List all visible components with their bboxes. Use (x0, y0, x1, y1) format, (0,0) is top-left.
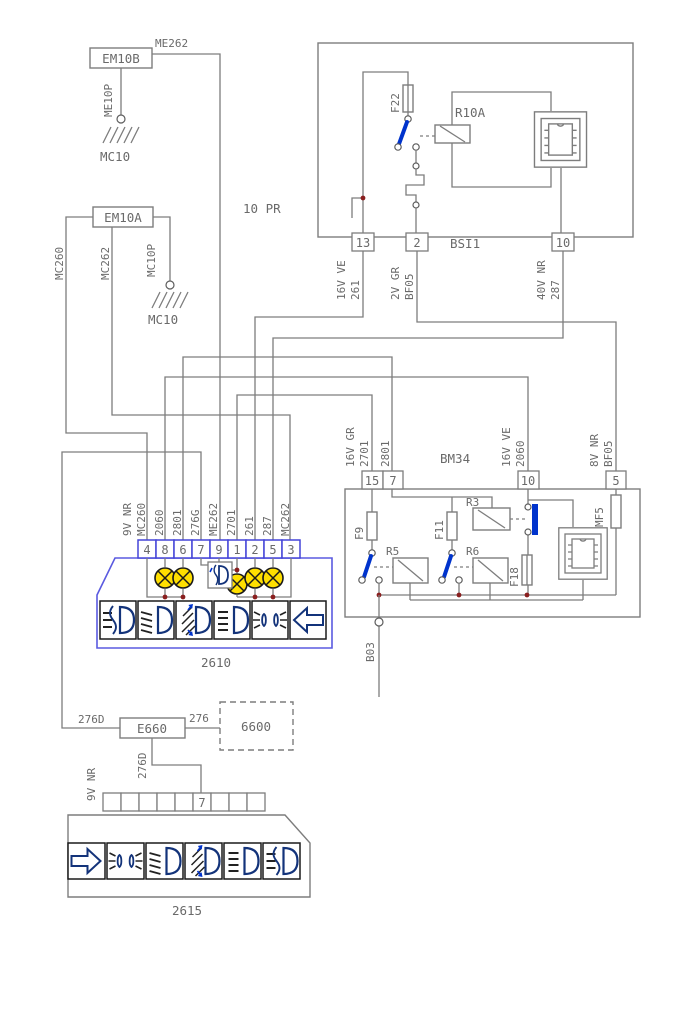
bsi1-pin10-num: 10 (556, 236, 570, 250)
junction-dot (361, 196, 366, 201)
wire-276d-label: 276D (78, 713, 105, 726)
unit-2615-title: 2615 (172, 903, 202, 918)
pin10-wire-label: 2060 (514, 441, 527, 468)
pin-3: 3 (287, 543, 294, 557)
diagram-canvas: EM10B ME262 ME10P MC10 EM10A MC260 MC262… (0, 0, 700, 1020)
pin-9: 9 (215, 543, 222, 557)
bsi1-pin13-num: 13 (356, 236, 370, 250)
wire-2801-label: 2801 (171, 510, 184, 537)
relay-r6-label: R6 (466, 545, 479, 558)
fuse-f22-label: F22 (389, 93, 402, 113)
bm34-pin5-num: 5 (612, 474, 619, 488)
lamp-symbol (173, 568, 193, 588)
wire-me10p-label: ME10P (102, 84, 115, 117)
contact (413, 163, 419, 169)
unit-2615: 9V NR 7 2615 (68, 768, 310, 918)
pin-1: 1 (233, 543, 240, 557)
pin15-voltage-label: 16V GR (344, 427, 357, 467)
pin2-voltage-label: 2V GR (389, 267, 402, 300)
ground-terminal (117, 115, 125, 123)
pin-7: 7 (198, 796, 205, 810)
wire-9vnr-label: 9V NR (121, 503, 134, 536)
fuse-mf5-label: MF5 (593, 507, 606, 527)
bm34-pin7-num: 7 (389, 474, 396, 488)
relay-r5-label: R5 (386, 545, 399, 558)
module-em10a-label: EM10A (104, 210, 142, 225)
wire-276g (62, 452, 201, 728)
wire-261-label: 261 (243, 516, 256, 536)
ground-terminal (166, 281, 174, 289)
contact (359, 577, 365, 583)
lamp-symbol (155, 568, 175, 588)
pin-8: 8 (161, 543, 168, 557)
connector-2615: 7 (103, 793, 265, 811)
bsi1-title: BSI1 (450, 236, 480, 251)
wire-9vnr-label: 9V NR (85, 768, 98, 801)
wire-276-label: 276 (189, 712, 209, 725)
wiring-diagram: EM10B ME262 ME10P MC10 EM10A MC260 MC262… (0, 0, 700, 1020)
bsi1-unit: F22 R10A 13 2 10 BSI1 16V VE 261 2V GR B… (318, 43, 633, 300)
wire-2060-label: 2060 (153, 510, 166, 537)
pin5-voltage-label: 8V NR (588, 434, 601, 467)
lamp-symbol (245, 568, 265, 588)
bm34-pin15-num: 15 (365, 474, 379, 488)
pin13-wire-label: 261 (349, 280, 362, 300)
fuse-mf5 (611, 495, 621, 528)
contact (525, 529, 531, 535)
wire-287-label: 287 (261, 516, 274, 536)
wire-mc10p-label: MC10P (145, 244, 158, 277)
contact (525, 504, 531, 510)
pin-7: 7 (197, 543, 204, 557)
bm34-title: BM34 (440, 451, 470, 466)
contact (439, 577, 445, 583)
fuse-f9 (367, 512, 377, 540)
ground-symbol (152, 292, 188, 308)
bsi1-pin2-num: 2 (413, 236, 420, 250)
contact (456, 577, 462, 583)
fuse-f9-label: F9 (353, 527, 366, 540)
bm34-pin10-num: 10 (521, 474, 535, 488)
pin10-voltage-label: 40V NR (535, 260, 548, 300)
wire-276d-down-label: 276D (136, 753, 149, 780)
contact (413, 144, 419, 150)
bm34-unit: BM34 15 7 10 5 16V GR 2701 2801 16V VE 2… (344, 427, 640, 697)
pin-5: 5 (269, 543, 276, 557)
splice-e660-label: E660 (137, 721, 167, 736)
supply-10pr-label: 10 PR (243, 201, 281, 216)
remote-6600-label: 6600 (241, 719, 271, 734)
wire-me262-label: ME262 (155, 37, 188, 50)
pin-6: 6 (179, 543, 186, 557)
connector-2610: 4 8 6 7 9 1 2 5 3 (138, 540, 300, 558)
wire-mc262-label: MC262 (99, 247, 112, 280)
module-em10b-label: EM10B (102, 51, 140, 66)
wire-mc262-label: MC262 (279, 503, 292, 536)
wire-me262-label: ME262 (207, 503, 220, 536)
unit-2610-title: 2610 (201, 655, 231, 670)
pin10-voltage-label: 16V VE (500, 427, 513, 467)
relay-r3-label: R3 (466, 496, 479, 509)
ground-mc10-label: MC10 (100, 149, 130, 164)
pin-4: 4 (143, 543, 150, 557)
wire-276d-down (152, 738, 201, 793)
unit-2610: 9V NR MC260 2060 2801 276G ME262 2701 26… (97, 503, 332, 670)
contact (413, 202, 419, 208)
pin5-wire-label: BF05 (602, 441, 615, 468)
pin10-wire-label: 287 (549, 280, 562, 300)
pin13-voltage-label: 16V VE (335, 260, 348, 300)
pin2-wire-label: BF05 (403, 274, 416, 301)
fuse-f11 (447, 512, 457, 540)
b03-terminal (375, 618, 383, 626)
contact (395, 144, 401, 150)
ground-mc10-label: MC10 (148, 312, 178, 327)
fuse-f18-label: F18 (508, 567, 521, 587)
pin15-wire-label: 2701 (358, 441, 371, 468)
splice-e660-group: E660 276D 276 276D 6600 (78, 702, 293, 793)
pin7-wire-label: 2801 (379, 441, 392, 468)
contact-bar (532, 504, 538, 535)
ground-symbol (103, 127, 139, 143)
wire-bf05 (417, 251, 616, 471)
wire-2701-label: 2701 (225, 510, 238, 537)
lamp-symbol (263, 568, 283, 588)
b03-label: B03 (364, 642, 377, 662)
contact (376, 577, 382, 583)
pin-2: 2 (251, 543, 258, 557)
wire-mc260-label: MC260 (135, 503, 148, 536)
fuse-f11-label: F11 (433, 520, 446, 540)
wire-mc260-label: MC260 (53, 247, 66, 280)
relay-r10a-label: R10A (455, 105, 486, 120)
wire-276g-label: 276G (189, 510, 202, 537)
